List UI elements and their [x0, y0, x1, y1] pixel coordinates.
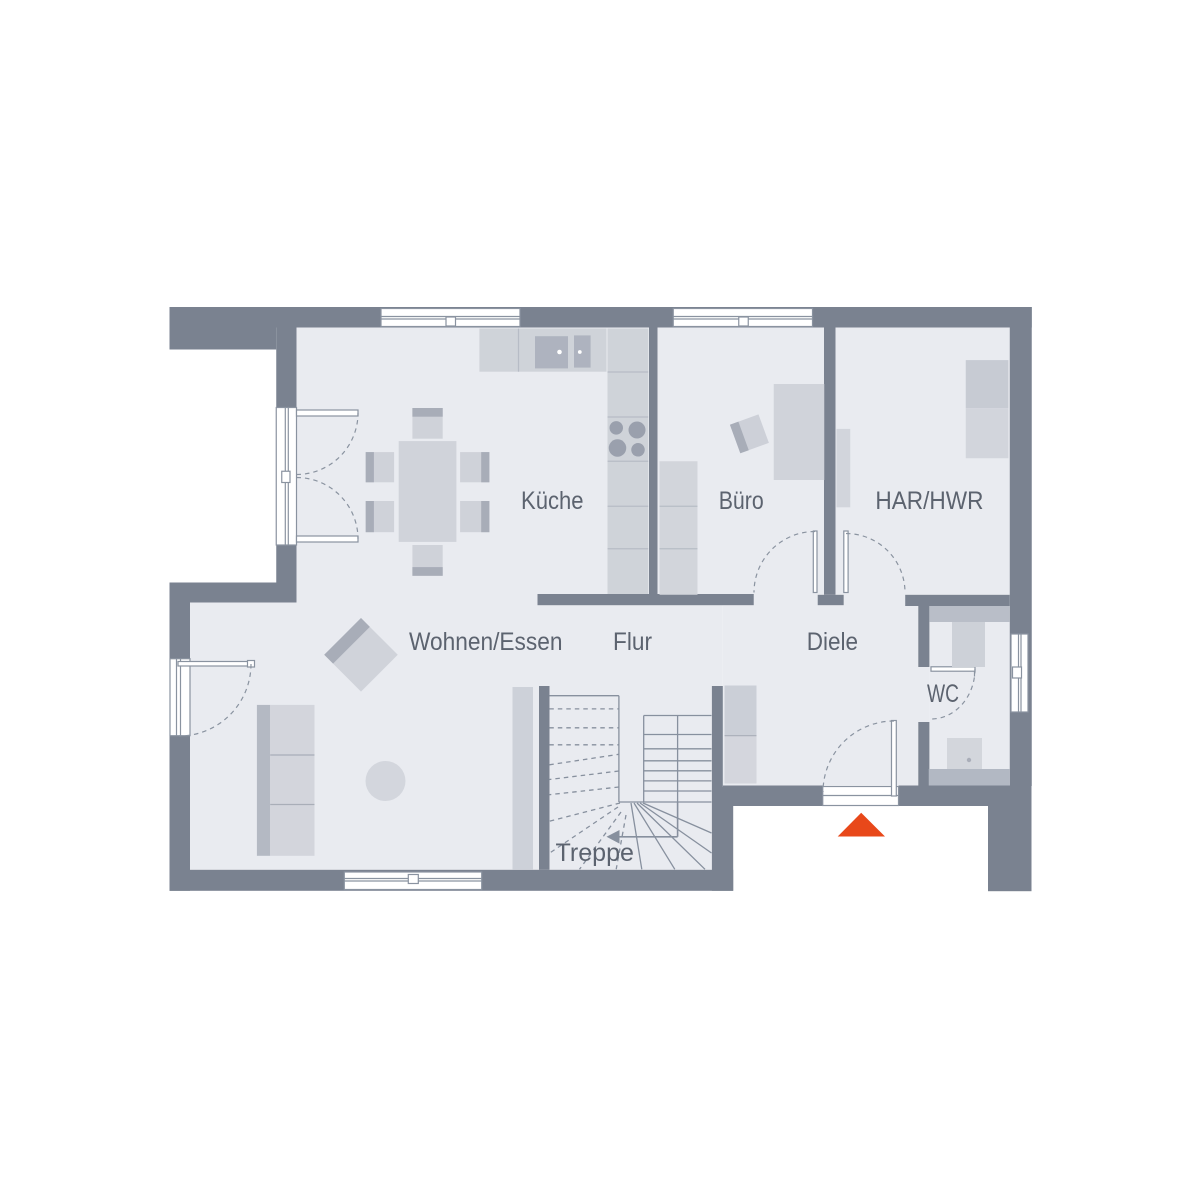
svg-text:Flur: Flur — [613, 628, 652, 656]
svg-text:Küche: Küche — [521, 487, 584, 515]
svg-text:Treppe: Treppe — [556, 839, 635, 867]
svg-text:Wohnen/Essen: Wohnen/Essen — [409, 628, 563, 656]
svg-text:Büro: Büro — [719, 487, 764, 515]
svg-text:Diele: Diele — [807, 628, 858, 656]
svg-text:HAR/HWR: HAR/HWR — [875, 487, 983, 515]
svg-text:WC: WC — [927, 680, 959, 708]
